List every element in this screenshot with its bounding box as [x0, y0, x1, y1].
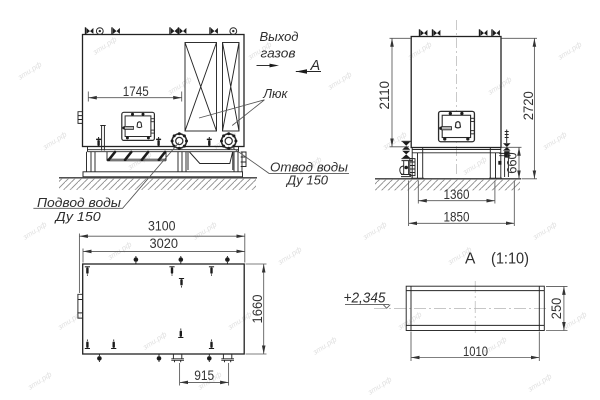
svg-text:3020: 3020 [150, 236, 179, 251]
svg-text:2110: 2110 [377, 81, 392, 110]
svg-text:2720: 2720 [521, 91, 536, 120]
svg-text:660: 660 [505, 152, 520, 174]
svg-text:1360: 1360 [444, 187, 470, 202]
svg-text:250: 250 [549, 298, 564, 320]
svg-text:(1:10): (1:10) [491, 251, 529, 268]
svg-text:Выход: Выход [260, 29, 299, 44]
svg-text:Люк: Люк [262, 86, 288, 101]
svg-text:1745: 1745 [123, 84, 149, 99]
svg-text:Ду 150: Ду 150 [54, 209, 102, 224]
svg-text:А: А [465, 251, 476, 268]
svg-text:3100: 3100 [148, 219, 176, 234]
svg-text:Подвод воды: Подвод воды [37, 195, 121, 210]
svg-text:1660: 1660 [250, 295, 265, 324]
svg-text:+2,345: +2,345 [344, 291, 387, 307]
svg-text:1010: 1010 [463, 344, 488, 359]
svg-text:газов: газов [261, 46, 296, 61]
svg-text:915: 915 [194, 368, 214, 383]
svg-text:1850: 1850 [444, 210, 470, 225]
svg-text:Ду 150: Ду 150 [285, 173, 329, 188]
